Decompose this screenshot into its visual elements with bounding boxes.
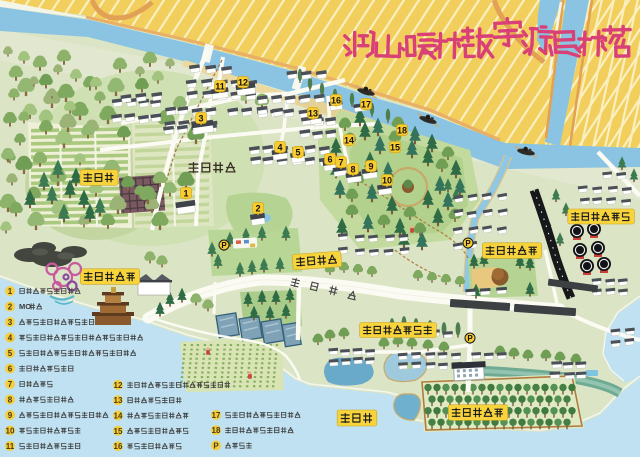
svg-text:9: 9 — [8, 411, 13, 420]
svg-text:P: P — [465, 239, 471, 248]
svg-text:12: 12 — [114, 381, 123, 390]
svg-text:11: 11 — [6, 442, 15, 451]
svg-text:8: 8 — [350, 164, 355, 174]
svg-text:2: 2 — [255, 203, 260, 213]
svg-text:2: 2 — [8, 303, 13, 312]
svg-text:12: 12 — [238, 77, 248, 87]
svg-text:16: 16 — [114, 442, 123, 451]
svg-text:10: 10 — [382, 175, 392, 185]
svg-text:1: 1 — [8, 287, 13, 296]
svg-text:9: 9 — [368, 161, 373, 171]
svg-text:18: 18 — [397, 125, 407, 135]
svg-text:P: P — [213, 442, 219, 451]
svg-text:16: 16 — [331, 95, 341, 105]
svg-text:6: 6 — [8, 365, 13, 374]
svg-text:6: 6 — [327, 154, 332, 164]
svg-text:18: 18 — [212, 426, 221, 435]
svg-text:8: 8 — [8, 396, 13, 405]
svg-text:1: 1 — [183, 188, 188, 198]
svg-text:7: 7 — [8, 380, 13, 389]
svg-text:15: 15 — [390, 142, 400, 152]
svg-text:14: 14 — [344, 135, 354, 145]
svg-text:5: 5 — [295, 147, 300, 157]
svg-text:17: 17 — [212, 411, 221, 420]
svg-text:15: 15 — [114, 427, 123, 436]
svg-text:14: 14 — [114, 412, 123, 421]
svg-text:P: P — [467, 334, 473, 343]
svg-text:4: 4 — [8, 334, 13, 343]
svg-text:P: P — [221, 241, 227, 250]
svg-text:5: 5 — [8, 349, 13, 358]
svg-text:7: 7 — [338, 157, 343, 167]
svg-text:4: 4 — [277, 142, 282, 152]
svg-text:3: 3 — [8, 318, 13, 327]
svg-text:13: 13 — [114, 396, 123, 405]
svg-text:17: 17 — [361, 99, 371, 109]
svg-text:10: 10 — [6, 427, 15, 436]
svg-text:3: 3 — [198, 113, 203, 123]
svg-text:MO: MO — [19, 302, 31, 311]
svg-text:11: 11 — [215, 81, 225, 91]
svg-text:13: 13 — [308, 108, 318, 118]
